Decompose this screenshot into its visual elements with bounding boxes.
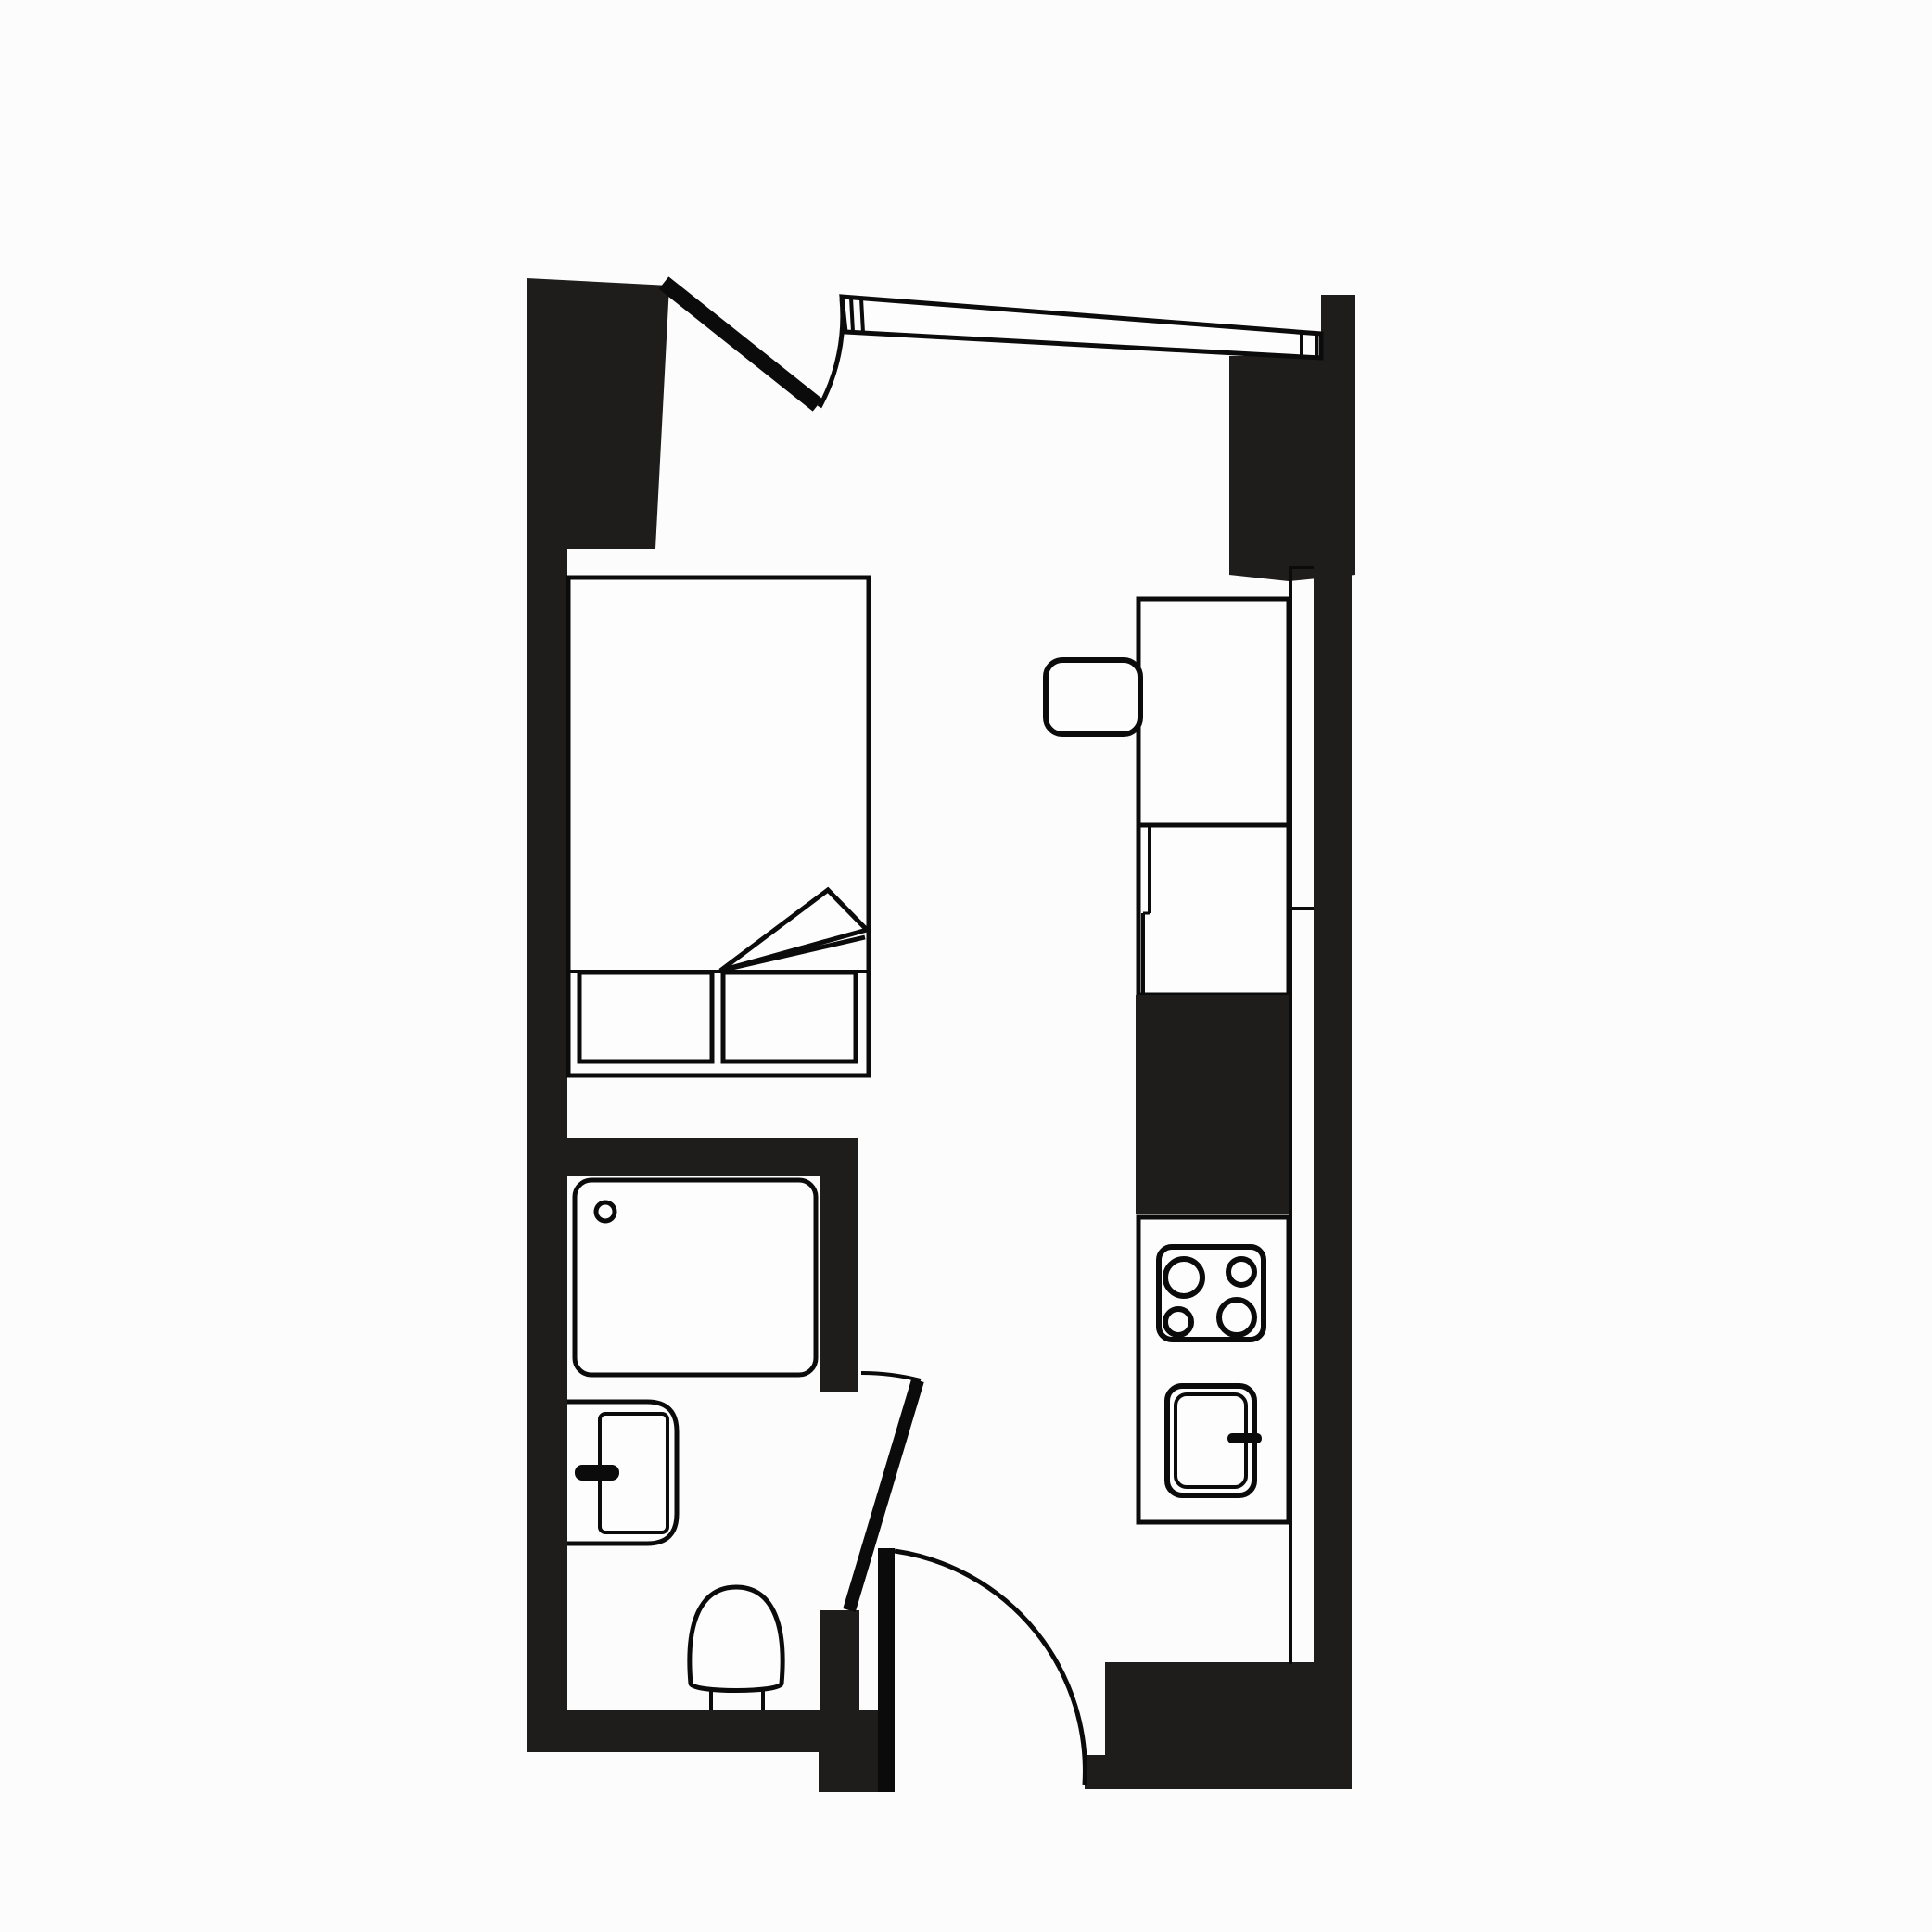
- bottom-right-wall: [1085, 1662, 1352, 1789]
- floor-plan: [0, 0, 1932, 1932]
- bathroom-top-wall: [528, 1138, 820, 1176]
- floor-plan-canvas: [0, 0, 1932, 1932]
- window: [842, 297, 1321, 358]
- balcony-door-swing: [820, 299, 843, 407]
- toilet-bowl: [690, 1587, 782, 1691]
- kitchen-lower-cabinet: [1138, 825, 1289, 995]
- bathroom-sink-tap: [575, 1465, 619, 1481]
- burner-large-top-left: [1165, 1259, 1202, 1296]
- shower-drain: [596, 1202, 615, 1221]
- entry-door-leaf: [878, 1548, 895, 1792]
- burner-large-bottom-right: [1219, 1300, 1254, 1335]
- kitchen-upper-cabinet: [1138, 599, 1289, 825]
- burner-small-top-right: [1228, 1259, 1254, 1285]
- kitchen-wall-block: [1136, 995, 1289, 1214]
- balcony-door-leaf: [664, 283, 818, 405]
- pillow-left: [579, 972, 712, 1061]
- bathroom-partition-lower: [819, 1610, 878, 1792]
- burner-small-bottom-left: [1165, 1309, 1191, 1335]
- right-wall: [1314, 569, 1352, 1662]
- kitchen-appliance: [1046, 660, 1140, 734]
- window-jamb-left-inner: [851, 298, 853, 332]
- bathroom-partition-upper: [820, 1138, 858, 1392]
- window-jamb-left-outer: [861, 299, 863, 333]
- pillow-right: [723, 972, 856, 1061]
- bathroom-bottom-wall: [528, 1710, 819, 1752]
- kitchen-sink-tap: [1227, 1433, 1262, 1443]
- entry-door-swing: [895, 1551, 1085, 1785]
